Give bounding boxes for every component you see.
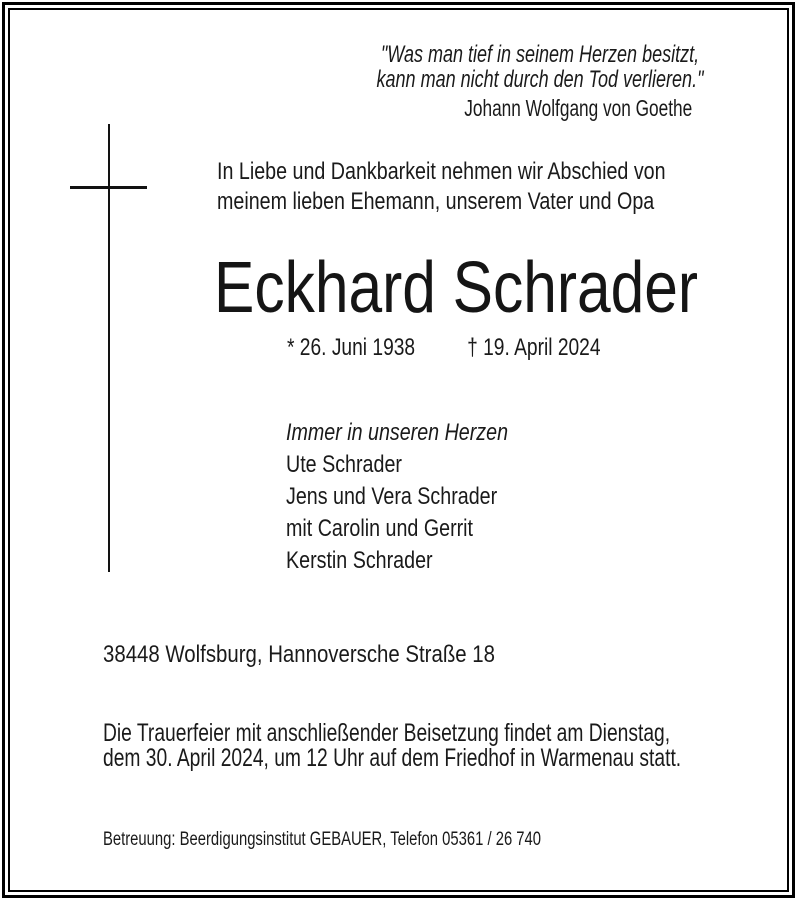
life-dates: * 26. Juni 1938 † 19. April 2024 [287,335,601,360]
intro-text: In Liebe und Dankbarkeit nehmen wir Absc… [217,157,666,217]
funeral-info: Die Trauerfeier mit anschließender Beise… [103,721,681,771]
quote-attribution: Johann Wolfgang von Goethe [444,97,713,119]
funeral-line-1: Die Trauerfeier mit anschließender Beise… [103,721,681,746]
deceased-name: Eckhard Schrader [214,252,698,324]
cross-horizontal-bar [70,186,147,189]
mourner-name: Ute Schrader [286,449,508,481]
quote-line-1: "Was man tief in seinem Herzen besitzt, [368,42,713,67]
memorial-quote: "Was man tief in seinem Herzen besitzt, … [368,42,713,119]
birth-date: * 26. Juni 1938 [287,335,415,360]
cross-vertical-bar [108,124,110,572]
funeral-line-2: dem 30. April 2024, um 12 Uhr auf dem Fr… [103,746,681,771]
death-date: † 19. April 2024 [467,335,600,360]
mourning-lead: Immer in unseren Herzen [286,417,508,449]
death-notice-page: "Was man tief in seinem Herzen besitzt, … [0,0,797,900]
mourning-block: Immer in unseren Herzen Ute Schrader Jen… [286,417,508,577]
intro-line-1: In Liebe und Dankbarkeit nehmen wir Absc… [217,157,666,187]
intro-line-2: meinem lieben Ehemann, unserem Vater und… [217,187,666,217]
mourner-name: Jens und Vera Schrader [286,481,508,513]
funeral-home-line: Betreuung: Beerdigungsinstitut GEBAUER, … [103,830,541,850]
quote-line-2: kann man nicht durch den Tod verlieren." [368,67,713,92]
mourner-name: mit Carolin und Gerrit [286,513,508,545]
address-line: 38448 Wolfsburg, Hannoversche Straße 18 [103,640,495,670]
mourner-name: Kerstin Schrader [286,545,508,577]
